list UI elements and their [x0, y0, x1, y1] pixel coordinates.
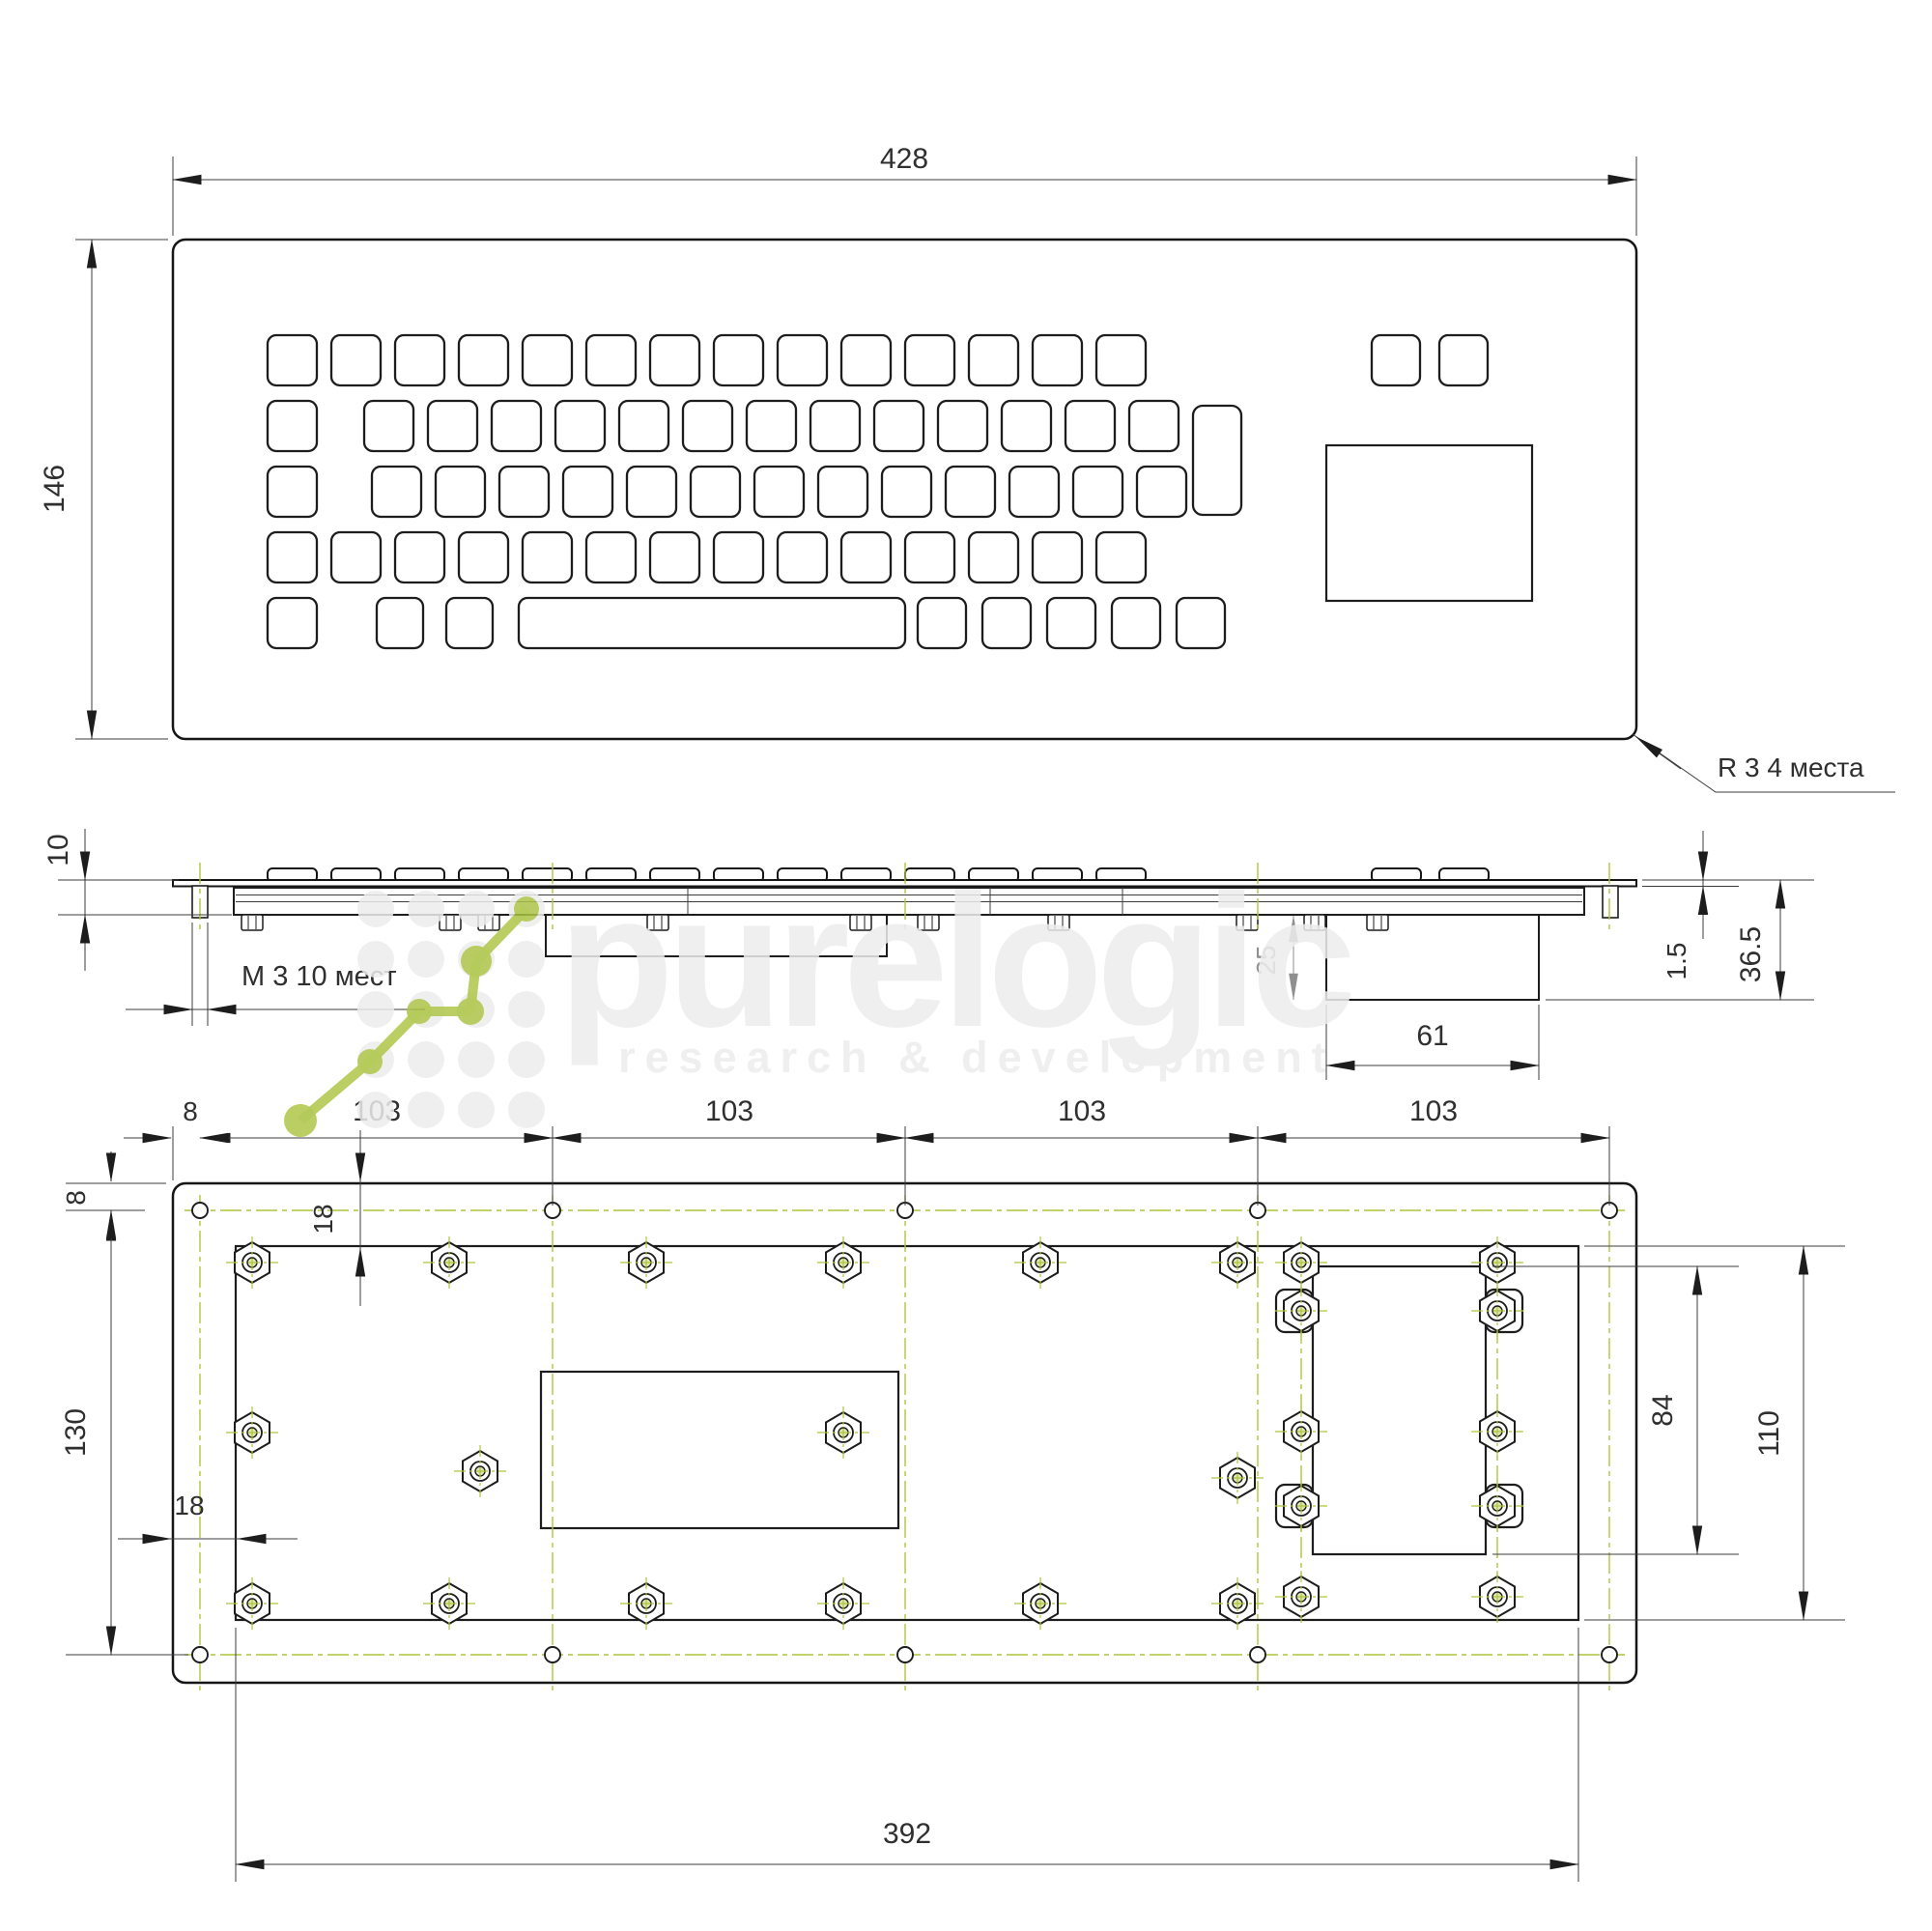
keyboard-key: [586, 532, 636, 582]
keyboard-key: [523, 335, 572, 385]
watermark-tagline: research & development: [618, 1033, 1336, 1082]
dim-label-span: 130: [60, 1408, 92, 1457]
keyboard-key: [428, 401, 477, 451]
keyboard-key: [1002, 401, 1051, 451]
keyboard-key: [1096, 532, 1146, 582]
dim-label-pitch: 103: [705, 1095, 753, 1127]
keyboard-key: [691, 467, 740, 517]
keyboard-key: [650, 335, 699, 385]
keyboard-key: [268, 401, 317, 451]
keyboard-key: [1112, 598, 1160, 648]
keyboard-key: [714, 335, 763, 385]
mounting-hole: [192, 1203, 208, 1218]
mounting-hole: [1250, 1647, 1265, 1662]
standoff-nut-profile: [440, 915, 461, 930]
trackpad-module-cutout: [1313, 1266, 1486, 1554]
technical-drawing-canvas: 428 146 R 3 4 места 10: [0, 0, 1932, 1931]
watermark-dot: [357, 1092, 394, 1128]
logo-dot: [357, 1049, 383, 1074]
keyboard-key: [1372, 335, 1420, 385]
keyboard-key: [1033, 532, 1082, 582]
leader-arrow: [1636, 737, 1681, 769]
keyboard-key: [268, 467, 317, 517]
keyboard-key: [1137, 467, 1186, 517]
standoff-nut-profile: [241, 915, 263, 930]
watermark-dot: [458, 891, 495, 927]
keyboard-key: [938, 401, 987, 451]
keyboard-key: [1033, 335, 1082, 385]
keyboard-key: [268, 335, 317, 385]
trackpad-cutout: [1326, 445, 1532, 601]
dim-label-pitch: 103: [1058, 1095, 1106, 1127]
watermark-dot: [357, 891, 394, 927]
mounting-hole: [897, 1647, 913, 1662]
keyboard-key: [1073, 467, 1122, 517]
keyboard-key: [650, 532, 699, 582]
keyboard-key: [268, 532, 317, 582]
dim-label-sheet: 1.5: [1662, 943, 1691, 980]
keyboard-key: [810, 401, 860, 451]
keyboard-key: [905, 532, 954, 582]
watermark-dot: [458, 1041, 495, 1078]
keyboard-key: [1047, 598, 1095, 648]
keyboard-key: [627, 467, 676, 517]
keyboard-key: [492, 401, 541, 451]
keyboard-key: [905, 335, 954, 385]
watermark-dot: [408, 941, 444, 978]
keyboard-key: [1439, 335, 1488, 385]
keyboard-key: [969, 335, 1018, 385]
keyboard-key: [519, 598, 905, 648]
logo-dot: [461, 946, 492, 977]
keyboard-key: [372, 467, 421, 517]
keyboard-key: [395, 335, 444, 385]
logo-dot: [457, 998, 484, 1025]
watermark-dot: [357, 991, 394, 1028]
dim-label-module-width: 61: [1416, 1020, 1448, 1052]
dim-label-front-height: 146: [39, 465, 71, 513]
keyboard-key: [1129, 401, 1179, 451]
keyboard-key: [969, 532, 1018, 582]
keyboard-key: [747, 401, 796, 451]
enter-key: [1193, 406, 1241, 515]
dim-label-plate-width: 392: [883, 1818, 931, 1850]
keyboard-key: [331, 532, 381, 582]
watermark-dot: [408, 1092, 444, 1128]
keyboard-key: [395, 532, 444, 582]
keyboard-key: [364, 401, 413, 451]
keyboard-key: [918, 598, 966, 648]
watermark-dot: [508, 1041, 545, 1078]
keyboard-key: [778, 532, 827, 582]
keyboard-key: [555, 401, 605, 451]
mount-stud-right: [1603, 886, 1618, 918]
keyboard-key: [982, 598, 1031, 648]
dim-label-side-height: 10: [43, 834, 74, 866]
watermark-dot: [508, 991, 545, 1028]
trackpad-housing-profile: [1326, 915, 1539, 1000]
keyboard-key: [1009, 467, 1059, 517]
mounting-hole: [192, 1647, 208, 1662]
keyboard-key: [563, 467, 612, 517]
keyboard-key: [714, 532, 763, 582]
keyboard-key: [818, 467, 867, 517]
dim-label-module-height: 110: [1753, 1410, 1785, 1457]
keyboard-key: [841, 335, 891, 385]
watermark-dot: [508, 1092, 545, 1128]
watermark-dot: [508, 941, 545, 978]
keyboard-key: [436, 467, 485, 517]
dim-label-inset-left: 18: [174, 1491, 204, 1520]
logo-dot: [284, 1104, 317, 1137]
keyboard-key: [459, 532, 508, 582]
watermark-dot: [408, 891, 444, 927]
keyboard-key: [946, 467, 995, 517]
standoff-nut-profile: [1367, 915, 1388, 930]
dim-label-edge-x: 8: [183, 1096, 198, 1126]
keyboard-key: [754, 467, 804, 517]
keyboard-key: [446, 598, 493, 648]
keyboard-key: [619, 401, 668, 451]
keyboard-key: [586, 335, 636, 385]
mounting-hole: [1602, 1647, 1617, 1662]
dim-label-cutout-height: 84: [1647, 1394, 1679, 1426]
dim-label-depth: 36.5: [1735, 926, 1767, 982]
watermark-dot: [458, 1092, 495, 1128]
dim-label-edge-y: 8: [61, 1190, 91, 1206]
keyboard-key: [841, 532, 891, 582]
watermark-dot: [408, 1041, 444, 1078]
keyboard-key: [1096, 335, 1146, 385]
dim-label-inset-top: 18: [308, 1204, 338, 1234]
logo-dot: [514, 896, 539, 922]
logo-dot: [407, 999, 432, 1024]
keyboard-key: [882, 467, 931, 517]
dim-label-front-width: 428: [880, 143, 928, 175]
mounting-hole: [545, 1647, 560, 1662]
keyboard-key: [377, 598, 423, 648]
keyboard-key: [1065, 401, 1115, 451]
keyboard-key: [874, 401, 923, 451]
keyboard-key: [268, 598, 317, 648]
keyboard-key: [683, 401, 732, 451]
keyboard-key: [331, 335, 381, 385]
front-view: 428 146 R 3 4 места: [39, 143, 1895, 792]
keyboard-key: [523, 532, 572, 582]
dim-label-pitch: 103: [1409, 1095, 1458, 1127]
keyboard-key: [778, 335, 827, 385]
back-view: 8 103 103 103 103 18 8 130 18 84: [60, 1095, 1845, 1882]
keyboard-key: [459, 335, 508, 385]
watermark-dot: [357, 941, 394, 978]
keyboard-key: [1177, 598, 1225, 648]
corner-radius-note: R 3 4 места: [1718, 753, 1864, 782]
keyboard-key: [499, 467, 549, 517]
